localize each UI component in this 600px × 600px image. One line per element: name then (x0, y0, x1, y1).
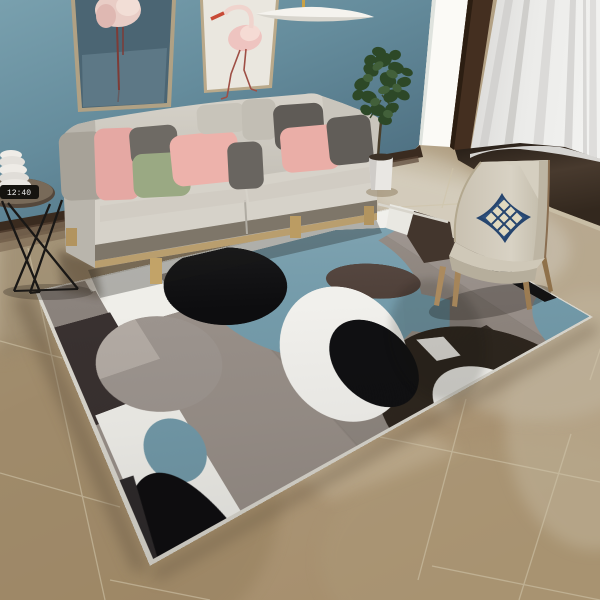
svg-text:12:40: 12:40 (7, 189, 31, 198)
